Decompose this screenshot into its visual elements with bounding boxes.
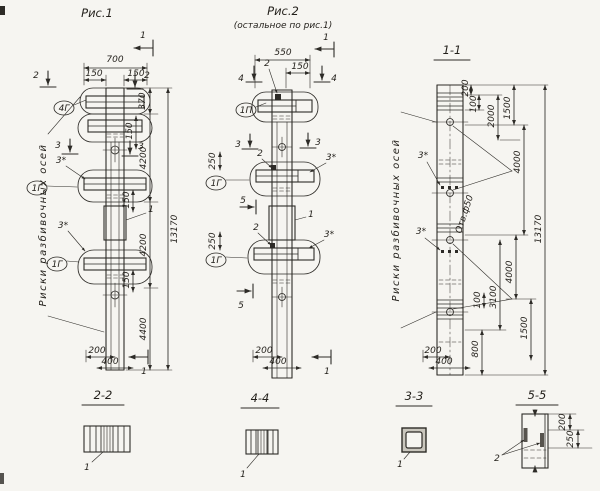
sec44-label: 1: [240, 470, 246, 480]
svg-text:2: 2: [264, 59, 270, 69]
dim-4000-bottom: 4000: [505, 260, 515, 283]
dim-150: 150: [291, 62, 308, 72]
fig2-axis-mark-1: [272, 137, 292, 157]
sec33-title: 3-3: [405, 389, 424, 403]
section-5-5: 5-5 200 250 2: [494, 388, 592, 472]
fig2-column-shaft: [272, 90, 292, 378]
section-2-2: 2-2 1: [82, 388, 130, 473]
sec44-title: 4-4: [251, 391, 270, 405]
fig1-callout-top: 4Г: [54, 100, 86, 115]
fig1-callout-bot: 1Г: [47, 257, 79, 271]
dim-2000: 2000: [487, 104, 497, 127]
dim-200: 200: [424, 346, 441, 356]
dim-4200-b: 4200: [139, 233, 149, 256]
sec55-title: 5-5: [528, 388, 547, 402]
dim-150-sub-a: 150: [125, 122, 135, 139]
dim-total-13170: 13170: [170, 214, 180, 243]
svg-text:1: 1: [141, 367, 147, 377]
svg-text:3*: 3*: [324, 230, 335, 240]
fig1-title: Рис.1: [81, 6, 113, 20]
svg-text:1: 1: [140, 31, 146, 41]
svg-text:1Г: 1Г: [211, 256, 223, 266]
dim-200: 200: [255, 346, 272, 356]
fig2-panel: 1: [269, 206, 314, 240]
svg-text:1П: 1П: [240, 106, 253, 116]
dim-250: 250: [566, 430, 576, 447]
dim-400: 400: [101, 357, 118, 367]
svg-text:1: 1: [323, 33, 329, 43]
svg-text:Риски разбивочных осей: Риски разбивочных осей: [37, 144, 49, 307]
dim-150-sub-b: 150: [122, 191, 132, 208]
sec11-right-dims: 200 100 2000 1500 4000 4000 3100 100 150…: [461, 79, 548, 375]
fig2-callout-bot: 1Г: [206, 253, 247, 267]
sec11-title: 1-1: [443, 43, 462, 57]
fig1-bottom-dims: 200 400: [86, 346, 133, 368]
svg-text:Риски разбивочных осей: Риски разбивочных осей: [390, 139, 402, 302]
dim-700: 700: [106, 55, 123, 65]
svg-text:4Г: 4Г: [59, 104, 71, 114]
fig2-callout-top: 1П: [236, 103, 266, 117]
svg-text:2: 2: [33, 71, 39, 81]
fig2-axis-mark-2: [272, 287, 292, 307]
svg-text:4: 4: [331, 74, 337, 84]
svg-text:3*: 3*: [56, 156, 67, 166]
fig2-mark-3star-a: 3*: [310, 153, 337, 172]
sec11-hole-leaders: Отв.ф50: [453, 126, 512, 309]
dim-4400: 4400: [139, 317, 149, 340]
dim-400: 400: [435, 357, 452, 367]
svg-text:3*: 3*: [418, 151, 429, 161]
svg-text:4: 4: [238, 74, 244, 84]
drawing-canvas: Рис.1 1 700 150 150 2 2: [0, 0, 600, 491]
fig1-top-dims: 700 150 150: [84, 55, 147, 86]
fig2-cut-mark-5a: 5: [240, 196, 256, 214]
section-3-3: 3-3 1: [396, 389, 432, 470]
dim-100-bottom: 100: [473, 291, 483, 308]
sec11-mark-3star-b: 3*: [416, 227, 440, 250]
sec22-title: 2-2: [94, 388, 113, 402]
hole-note: Отв.ф50: [454, 194, 476, 235]
fig1-elevation: Рис.1 1 700 150 150 2 2: [27, 6, 180, 377]
dim-250-b: 250: [208, 232, 218, 249]
drawing-sheet: Рис.1 1 700 150 150 2 2: [0, 0, 600, 491]
svg-text:5: 5: [238, 301, 244, 311]
fig2-bottom-joint: [248, 240, 320, 283]
dim-200: 200: [88, 346, 105, 356]
fig1-mark-3star-b: 3*: [58, 221, 85, 251]
section-1-1: 1-1: [390, 43, 548, 375]
dim-4000-top: 4000: [513, 150, 523, 173]
svg-text:3*: 3*: [58, 221, 69, 231]
sec22-label: 1: [84, 463, 90, 473]
dim-400: 400: [269, 357, 286, 367]
fig2-callout-mid: 1Г: [206, 176, 249, 190]
fig2-mark-2-top: 2: [264, 59, 277, 93]
svg-text:3: 3: [235, 140, 241, 150]
dim-200-top: 200: [461, 79, 471, 96]
section-4-4: 4-4 1: [240, 391, 279, 480]
fig2-mark-3star-b: 3*: [309, 230, 335, 248]
svg-text:1: 1: [324, 367, 330, 377]
svg-text:3*: 3*: [416, 227, 427, 237]
dim-100-top: 100: [469, 95, 479, 112]
dim-370: 370: [138, 92, 148, 109]
fig2-cut-mark-5b: 5: [237, 284, 253, 311]
fig1-callout-mid: 1Г: [27, 181, 77, 195]
svg-text:2: 2: [144, 71, 150, 81]
dim-800: 800: [471, 340, 481, 357]
fig2-subtitle: (остальное по рис.1): [234, 21, 332, 31]
fig2-cut-mark-4: 4 4: [238, 66, 337, 84]
dim-200: 200: [558, 413, 568, 430]
dim-4200-a: 4200: [139, 146, 149, 169]
fig2-title: Рис.2: [267, 4, 299, 18]
fig1-right-dims: 370 4200 4200 4400 13170 150 150 150: [122, 88, 180, 370]
dim-total-13170: 13170: [534, 214, 544, 243]
svg-text:3*: 3*: [326, 153, 337, 163]
svg-text:1: 1: [148, 205, 154, 215]
svg-text:2: 2: [253, 223, 259, 233]
svg-text:1Г: 1Г: [52, 260, 64, 270]
sec55-label: 2: [494, 454, 500, 464]
sec11-axes-note: Риски разбивочных осей: [390, 112, 436, 328]
fig1-cut-mark-1-bottom: 1: [129, 350, 148, 377]
dim-1500-top: 1500: [503, 96, 513, 119]
dim-3100: 3100: [489, 285, 499, 308]
scan-artifacts: [0, 6, 5, 484]
svg-text:3: 3: [315, 138, 321, 148]
svg-text:1: 1: [308, 210, 314, 220]
dim-150-left: 150: [85, 69, 102, 79]
fig2-cut-mark-1-bottom: 1: [312, 350, 331, 377]
fig2-elevation: Рис.2 (остальное по рис.1) 1 550 150 4 4…: [206, 4, 337, 378]
dim-550: 550: [274, 48, 291, 58]
svg-text:2: 2: [257, 149, 263, 159]
sec33-label: 1: [397, 460, 403, 470]
dim-150-sub-c: 150: [122, 271, 132, 288]
svg-text:1Г: 1Г: [211, 179, 223, 189]
fig1-middle-joint: [78, 170, 152, 202]
fig1-mark-3star-a: 3*: [56, 156, 85, 179]
dim-150-right: 150: [127, 69, 144, 79]
fig2-top-joint: [252, 92, 318, 122]
svg-text:3: 3: [55, 141, 61, 151]
fig2-middle-joint: [250, 162, 320, 196]
fig2-mark-2-low: 2 250: [208, 223, 271, 250]
fig1-column-shaft: [106, 88, 124, 370]
fig1-cut-mark-3: 3 3: [55, 139, 144, 156]
svg-text:5: 5: [240, 196, 246, 206]
fig2-mark-2-mid: 2 250: [208, 149, 272, 170]
dim-1500-bottom: 1500: [520, 316, 530, 339]
fig1-cut-mark-1: 1: [134, 31, 153, 56]
dim-250-a: 250: [208, 152, 218, 169]
fig2-cut-mark-1: 1: [315, 33, 334, 57]
